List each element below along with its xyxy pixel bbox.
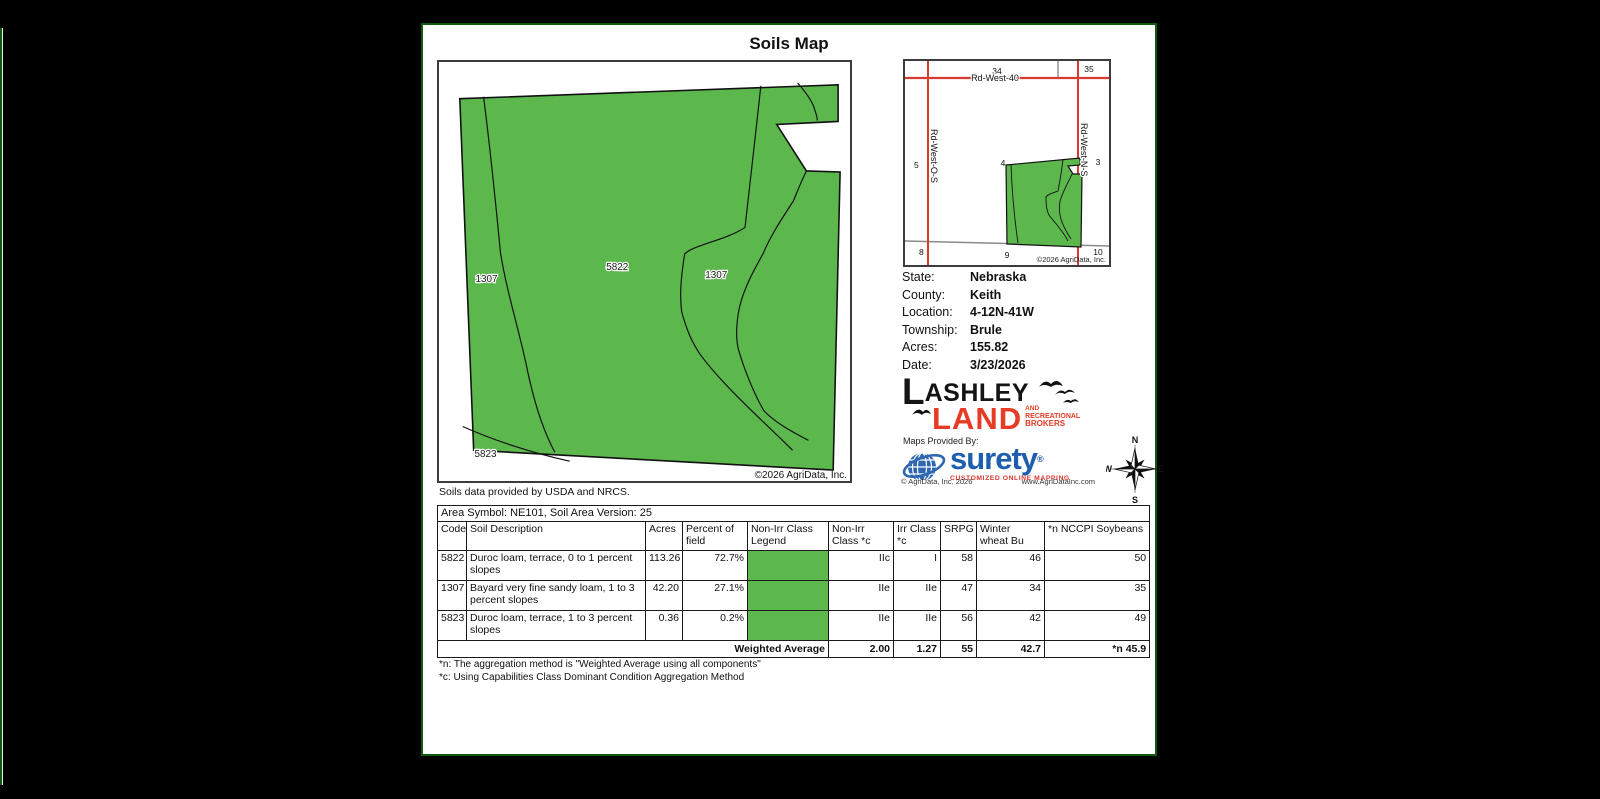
soil-code-label: 1307 xyxy=(476,274,498,285)
wa-srpg: 55 xyxy=(941,641,977,658)
cell-nccpi-soybeans: 49 xyxy=(1045,611,1150,641)
info-row-state: State: Nebraska xyxy=(902,270,1112,288)
cell-description: Duroc loam, terrace, 0 to 1 percent slop… xyxy=(467,551,646,581)
info-label: Acres: xyxy=(902,340,970,358)
col-header-description: Soil Description xyxy=(467,522,646,551)
surety-website: www.AgriDataInc.com xyxy=(1022,477,1095,486)
wa-nccpi-soybeans: *n 45.9 xyxy=(1045,641,1150,658)
lashley-line2: LAND AND RECREATIONAL BROKERS xyxy=(910,406,1092,432)
area-symbol: Area Symbol: NE101, Soil Area Version: 2… xyxy=(438,506,1150,522)
locator-copyright: ©2026 AgriData, Inc. xyxy=(1037,255,1106,264)
info-value: Keith xyxy=(970,288,1001,306)
info-row-acres: Acres: 155.82 xyxy=(902,340,1112,358)
col-header-percent: Percent of field xyxy=(683,522,748,551)
cell-nccpi-soybeans: 35 xyxy=(1045,581,1150,611)
locator-map-drawing: 34 35 5 4 3 8 9 10 Rd-West-40 Rd-West-O-… xyxy=(905,61,1109,265)
map-copyright: ©2026 AgriData, Inc. xyxy=(755,470,847,481)
info-row-township: Township: Brule xyxy=(902,323,1112,341)
info-value: 3/23/2026 xyxy=(970,358,1026,376)
info-row-date: Date: 3/23/2026 xyxy=(902,358,1112,376)
cell-srpg: 56 xyxy=(941,611,977,641)
legend-swatch xyxy=(748,611,829,641)
col-header-nccpi-soybeans: *n NCCPI Soybeans xyxy=(1045,522,1150,551)
wa-winter-wheat: 42.7 xyxy=(977,641,1045,658)
soil-code-label: 1307 xyxy=(705,270,727,281)
section-number: 3 xyxy=(1096,157,1101,167)
legend-swatch xyxy=(748,551,829,581)
col-header-srpg: SRPG xyxy=(941,522,977,551)
lashley-big-l: L xyxy=(902,379,925,405)
cell-percent: 27.1% xyxy=(683,581,748,611)
compass-n-label: N xyxy=(1132,435,1139,445)
property-info: State: Nebraska County: Keith Location: … xyxy=(902,270,1112,375)
cell-nccpi-soybeans: 50 xyxy=(1045,551,1150,581)
cell-percent: 0.2% xyxy=(683,611,748,641)
lashley-subtitle: AND RECREATIONAL BROKERS xyxy=(1025,406,1080,428)
locator-field-polygon xyxy=(1006,158,1082,247)
cell-non-irr-class: IIc xyxy=(829,551,894,581)
surety-copyright: © AgriData, Inc. 2026 xyxy=(901,477,972,486)
soils-data-source-note: Soils data provided by USDA and NRCS. xyxy=(439,486,630,498)
section-number: 4 xyxy=(1001,158,1006,168)
locator-map: 34 35 5 4 3 8 9 10 Rd-West-40 Rd-West-O-… xyxy=(903,59,1111,267)
flying-ducks-icon xyxy=(1029,379,1081,407)
footnote-c: *c: Using Capabilities Class Dominant Co… xyxy=(439,672,744,683)
info-label: Township: xyxy=(902,323,970,341)
soil-code-label: 5823 xyxy=(475,449,498,460)
page-title: Soils Map xyxy=(423,34,1155,54)
cell-code: 5822 xyxy=(438,551,467,581)
soils-table: Area Symbol: NE101, Soil Area Version: 2… xyxy=(437,505,1150,658)
cell-code: 5823 xyxy=(438,611,467,641)
info-value: Nebraska xyxy=(970,270,1026,288)
table-row: 1307 Bayard very fine sandy loam, 1 to 3… xyxy=(438,581,1150,611)
footnote-n: *n: The aggregation method is "Weighted … xyxy=(439,659,761,670)
duck-icon xyxy=(910,406,932,420)
cell-irr-class: I xyxy=(894,551,941,581)
cell-winter-wheat: 34 xyxy=(977,581,1045,611)
section-number: 5 xyxy=(914,160,919,170)
cell-non-irr-class: IIe xyxy=(829,581,894,611)
cell-description: Duroc loam, terrace, 1 to 3 percent slop… xyxy=(467,611,646,641)
cell-description: Bayard very fine sandy loam, 1 to 3 perc… xyxy=(467,581,646,611)
lashley-land-word: LAND xyxy=(932,406,1022,432)
surety-footer: © AgriData, Inc. 2026 www.AgriDataInc.co… xyxy=(901,477,1095,486)
cell-irr-class: IIe xyxy=(894,581,941,611)
soils-data-table: Area Symbol: NE101, Soil Area Version: 2… xyxy=(437,505,1150,658)
road-label-rd-west-n-s: Rd-West-N-S xyxy=(1079,123,1089,176)
weighted-average-label: Weighted Average xyxy=(438,641,829,658)
col-header-acres: Acres xyxy=(646,522,683,551)
wa-non-irr-class: 2.00 xyxy=(829,641,894,658)
info-label: County: xyxy=(902,288,970,306)
report-page: Soils Map 1307 5822 1307 5823 ©2026 Agri… xyxy=(421,23,1157,756)
cell-acres: 0.36 xyxy=(646,611,683,641)
cell-acres: 42.20 xyxy=(646,581,683,611)
field-polygon xyxy=(460,85,840,470)
info-label: State: xyxy=(902,270,970,288)
info-label: Location: xyxy=(902,305,970,323)
cell-srpg: 47 xyxy=(941,581,977,611)
cell-code: 1307 xyxy=(438,581,467,611)
registered-mark: ® xyxy=(1037,454,1043,464)
legend-swatch xyxy=(748,581,829,611)
info-row-location: Location: 4-12N-41W xyxy=(902,305,1112,323)
road-label-rd-west-40: Rd-West-40 xyxy=(971,73,1019,83)
main-soils-map: 1307 5822 1307 5823 ©2026 AgriData, Inc. xyxy=(437,60,852,483)
cell-percent: 72.7% xyxy=(683,551,748,581)
cell-acres: 113.26 xyxy=(646,551,683,581)
col-header-code: Code xyxy=(438,522,467,551)
compass-rose-icon: N E S W xyxy=(1106,430,1164,508)
section-number: 35 xyxy=(1084,64,1094,74)
page-edge-artifact-highlight xyxy=(2,28,3,785)
wa-irr-class: 1.27 xyxy=(894,641,941,658)
cell-non-irr-class: IIe xyxy=(829,611,894,641)
cell-winter-wheat: 46 xyxy=(977,551,1045,581)
compass-e-label: E xyxy=(1158,464,1164,474)
cell-winter-wheat: 42 xyxy=(977,611,1045,641)
col-header-non-irr-class: Non-Irr Class *c xyxy=(829,522,894,551)
col-header-legend: Non-Irr Class Legend xyxy=(748,522,829,551)
table-row: 5822 Duroc loam, terrace, 0 to 1 percent… xyxy=(438,551,1150,581)
weighted-average-row: Weighted Average 2.00 1.27 55 42.7 *n 45… xyxy=(438,641,1150,658)
cell-srpg: 58 xyxy=(941,551,977,581)
col-header-winter-wheat: Winter wheat Bu xyxy=(977,522,1045,551)
surety-wordmark: surety xyxy=(950,441,1037,476)
info-row-county: County: Keith xyxy=(902,288,1112,306)
table-header-row: Code Soil Description Acres Percent of f… xyxy=(438,522,1150,551)
soils-map-drawing: 1307 5822 1307 5823 xyxy=(439,62,850,481)
section-number: 9 xyxy=(1005,250,1010,260)
lashley-sub-brokers: BROKERS xyxy=(1025,420,1080,428)
lashley-land-logo: L ASHLEY LAND AND RECREATIONAL BROKERS xyxy=(902,379,1092,432)
info-value: 4-12N-41W xyxy=(970,305,1034,323)
info-value: 155.82 xyxy=(970,340,1008,358)
area-symbol-row: Area Symbol: NE101, Soil Area Version: 2… xyxy=(438,506,1150,522)
table-row: 5823 Duroc loam, terrace, 1 to 3 percent… xyxy=(438,611,1150,641)
compass-s-label: S xyxy=(1132,495,1138,505)
compass-w-label: W xyxy=(1106,464,1113,474)
info-value: Brule xyxy=(970,323,1002,341)
cell-irr-class: IIe xyxy=(894,611,941,641)
soil-code-label: 5822 xyxy=(606,262,628,273)
section-number: 8 xyxy=(919,247,924,257)
col-header-irr-class: Irr Class *c xyxy=(894,522,941,551)
road-label-rd-west-o-s: Rd-West-O-S xyxy=(929,129,939,183)
